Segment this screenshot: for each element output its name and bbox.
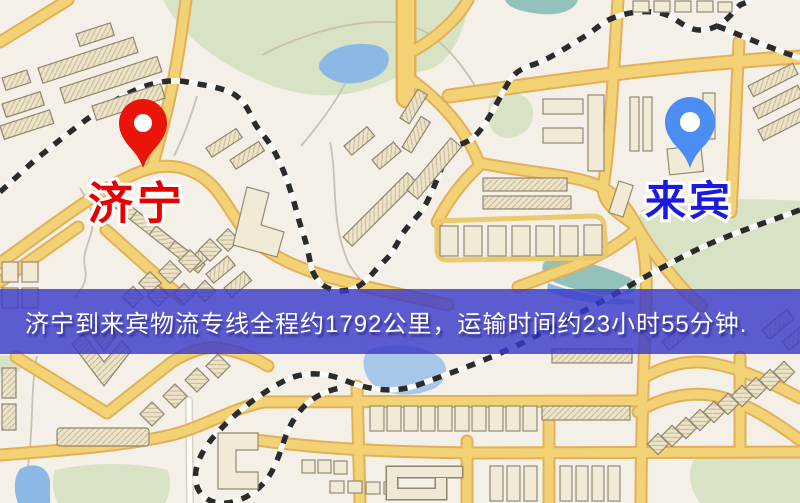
- route-banner-text: 济宁到来宾物流专线全程约1792公里，运输时间约23小时55分钟.: [0, 304, 747, 339]
- origin-label: 济宁: [88, 178, 186, 229]
- logistics-route-map: 济宁 来宾 济宁到来宾物流专线全程约1792公里，运输时间约23小时55分钟.: [0, 0, 800, 503]
- route-banner: 济宁到来宾物流专线全程约1792公里，运输时间约23小时55分钟.: [0, 289, 800, 354]
- map-canvas: 济宁 来宾: [0, 0, 800, 503]
- minor-roads: [189, 400, 190, 503]
- destination-label: 来宾: [645, 178, 733, 224]
